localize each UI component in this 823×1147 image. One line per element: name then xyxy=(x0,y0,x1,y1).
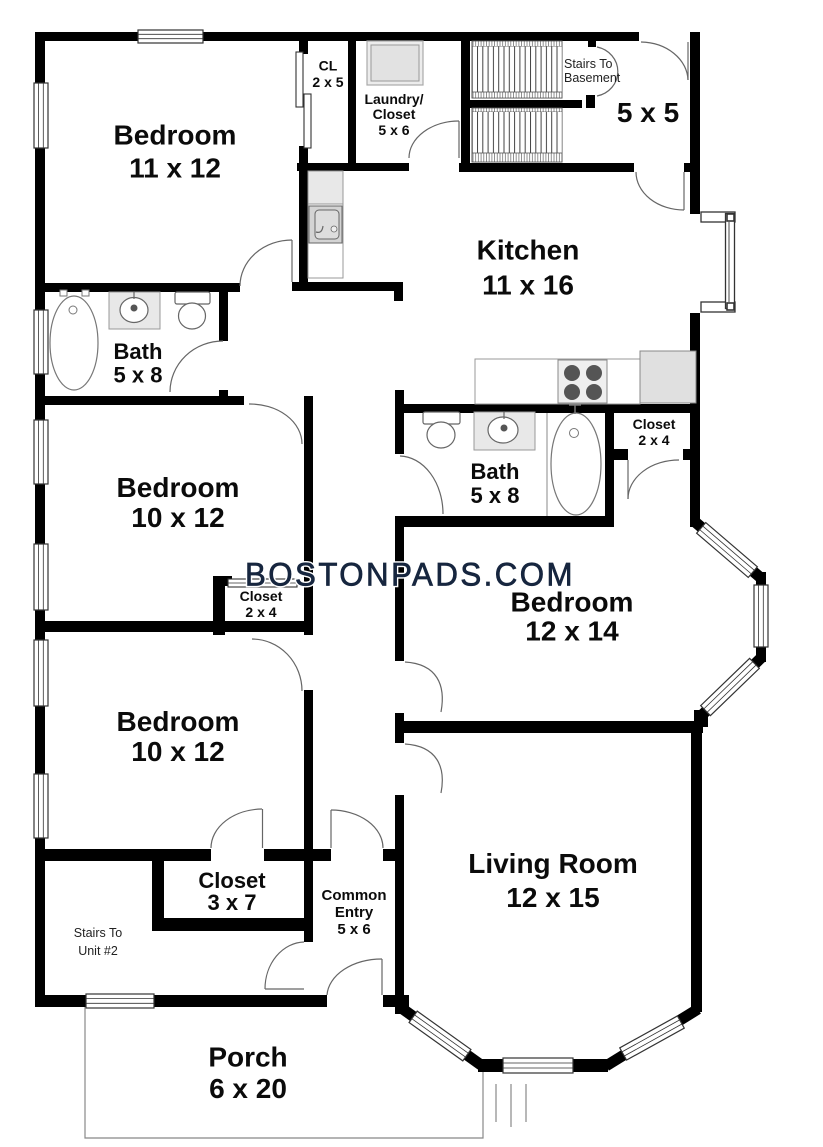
svg-text:12 x 15: 12 x 15 xyxy=(506,882,599,913)
svg-text:11 x 12: 11 x 12 xyxy=(129,153,221,184)
svg-text:Bath: Bath xyxy=(114,339,163,364)
svg-text:CL: CL xyxy=(319,58,338,74)
svg-text:10 x 12: 10 x 12 xyxy=(131,502,224,533)
svg-text:Bedroom: Bedroom xyxy=(114,120,237,151)
svg-text:3 x 7: 3 x 7 xyxy=(208,890,257,915)
svg-text:BOSTONPADS.COM: BOSTONPADS.COM xyxy=(245,557,575,593)
svg-text:Stairs To: Stairs To xyxy=(564,57,612,71)
svg-text:Bedroom: Bedroom xyxy=(117,472,240,503)
svg-text:Entry: Entry xyxy=(335,904,374,921)
svg-text:12 x 14: 12 x 14 xyxy=(525,616,619,647)
svg-text:5 x 6: 5 x 6 xyxy=(337,921,370,938)
svg-text:5 x 5: 5 x 5 xyxy=(617,97,679,128)
svg-text:11 x 16: 11 x 16 xyxy=(482,270,574,301)
svg-text:Unit #2: Unit #2 xyxy=(78,944,118,958)
svg-text:10 x 12: 10 x 12 xyxy=(131,736,224,767)
svg-text:Bath: Bath xyxy=(471,459,520,484)
svg-text:Bedroom: Bedroom xyxy=(117,706,240,737)
svg-text:Common: Common xyxy=(322,887,387,904)
svg-text:5 x 8: 5 x 8 xyxy=(114,363,163,388)
svg-text:Living Room: Living Room xyxy=(468,848,638,879)
svg-text:Kitchen: Kitchen xyxy=(477,235,580,266)
svg-text:Stairs To: Stairs To xyxy=(74,926,122,940)
svg-text:Laundry/: Laundry/ xyxy=(364,91,423,107)
svg-text:2 x 5: 2 x 5 xyxy=(312,74,343,90)
svg-text:Closet: Closet xyxy=(633,416,676,432)
svg-text:2 x 4: 2 x 4 xyxy=(245,604,276,620)
svg-text:5 x 6: 5 x 6 xyxy=(378,122,409,138)
svg-text:Porch: Porch xyxy=(208,1042,287,1073)
svg-text:5 x 8: 5 x 8 xyxy=(471,483,520,508)
svg-text:6 x 20: 6 x 20 xyxy=(209,1073,287,1104)
svg-text:Basement: Basement xyxy=(564,71,621,85)
svg-text:Closet: Closet xyxy=(373,106,416,122)
svg-text:2 x 4: 2 x 4 xyxy=(638,432,669,448)
